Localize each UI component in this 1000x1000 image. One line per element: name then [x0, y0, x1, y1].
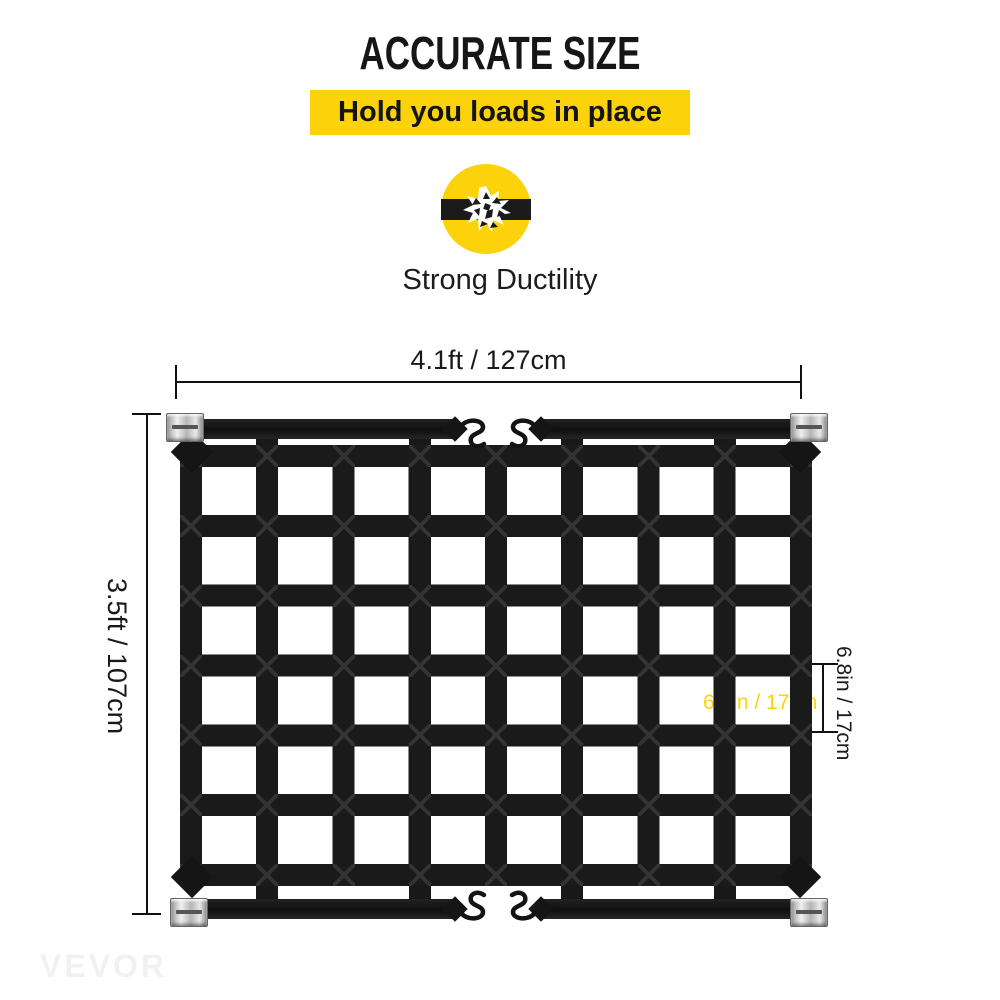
stitch-cross	[333, 655, 355, 677]
stitch-cross	[561, 864, 583, 886]
width-dimension-label: 4.1ft / 127cm	[176, 345, 801, 376]
top-right-strap	[542, 419, 800, 439]
stitch-cross	[561, 724, 583, 746]
dimension-line	[146, 414, 148, 915]
s-hook-icon	[498, 886, 540, 922]
strap-loop-stub	[409, 886, 431, 899]
stitch-cross	[714, 585, 736, 607]
dimension-tick	[132, 413, 161, 415]
strap-loop-stub	[561, 886, 583, 899]
stitch-cross	[638, 724, 660, 746]
stitch-cross	[714, 515, 736, 537]
stitch-cross	[485, 724, 507, 746]
stitch-cross	[714, 655, 736, 677]
stitch-cross	[561, 794, 583, 816]
stitch-cross	[333, 794, 355, 816]
stitch-cross	[256, 864, 278, 886]
stitch-cross	[256, 515, 278, 537]
stitch-cross	[409, 655, 431, 677]
stitch-cross	[790, 515, 812, 537]
stitch-cross	[790, 585, 812, 607]
stitch-cross	[256, 445, 278, 467]
stitch-cross	[638, 585, 660, 607]
stitch-cross	[561, 515, 583, 537]
stitch-cross	[485, 515, 507, 537]
stitch-cross	[714, 724, 736, 746]
dimension-tick	[808, 731, 838, 733]
brand-watermark: VEVOR	[40, 948, 167, 985]
stitch-cross	[333, 585, 355, 607]
stitch-cross	[409, 864, 431, 886]
stitch-cross	[256, 585, 278, 607]
cam-buckle	[166, 413, 204, 442]
stitch-cross	[485, 655, 507, 677]
stitch-cross	[180, 585, 202, 607]
stitch-cross	[333, 864, 355, 886]
s-hook-icon	[498, 417, 540, 453]
height-dimension-label: 3.5ft / 107cm	[101, 578, 132, 734]
stitch-cross	[638, 864, 660, 886]
stitch-cross	[409, 794, 431, 816]
stitch-cross	[409, 724, 431, 746]
stitch-cross	[180, 515, 202, 537]
cam-buckle	[170, 898, 208, 927]
page-title: ACCURATE SIZE	[120, 26, 880, 80]
dimension-tick	[800, 365, 802, 399]
strap-loop-stub	[714, 886, 736, 899]
cam-buckle	[790, 413, 828, 442]
bottom-left-strap	[196, 899, 454, 919]
s-hook-icon	[456, 417, 498, 453]
dimension-tick	[175, 365, 177, 399]
cargo-net	[180, 445, 812, 886]
stitch-cross	[638, 794, 660, 816]
broken-strap-burst-icon	[441, 164, 531, 254]
top-left-strap	[196, 419, 454, 439]
stitch-cross	[638, 515, 660, 537]
stitch-cross	[409, 445, 431, 467]
stitch-cross	[409, 585, 431, 607]
stitch-cross	[714, 864, 736, 886]
subtitle-text: Hold you loads in place	[338, 96, 662, 129]
stitch-cross	[180, 794, 202, 816]
product-infographic: ACCURATE SIZE Hold you loads in place St…	[0, 0, 1000, 1000]
stitch-cross	[180, 724, 202, 746]
stitch-cross	[333, 724, 355, 746]
stitch-cross	[561, 585, 583, 607]
strap-loop-stub	[256, 886, 278, 899]
subtitle-banner: Hold you loads in place	[310, 90, 690, 135]
dimension-line	[822, 664, 824, 733]
bottom-right-strap	[542, 899, 800, 919]
stitch-cross	[180, 655, 202, 677]
stitch-cross	[638, 445, 660, 467]
stitch-cross	[790, 724, 812, 746]
stitch-cross	[790, 794, 812, 816]
stitch-cross	[790, 655, 812, 677]
stitch-cross	[256, 655, 278, 677]
stitch-cross	[561, 655, 583, 677]
cam-buckle	[790, 898, 828, 927]
stitch-cross	[638, 655, 660, 677]
feature-label: Strong Ductility	[0, 264, 1000, 297]
dimension-line	[176, 381, 801, 383]
stitch-cross	[485, 864, 507, 886]
stitch-cross	[714, 794, 736, 816]
dimension-tick	[808, 663, 838, 665]
dimension-tick	[132, 913, 161, 915]
stitch-cross	[485, 585, 507, 607]
stitch-cross	[561, 445, 583, 467]
stitch-cross	[714, 445, 736, 467]
stitch-cross	[485, 794, 507, 816]
stitch-cross	[333, 515, 355, 537]
stitch-cross	[409, 515, 431, 537]
stitch-cross	[333, 445, 355, 467]
s-hook-icon	[456, 886, 498, 922]
stitch-cross	[256, 724, 278, 746]
stitch-cross	[256, 794, 278, 816]
